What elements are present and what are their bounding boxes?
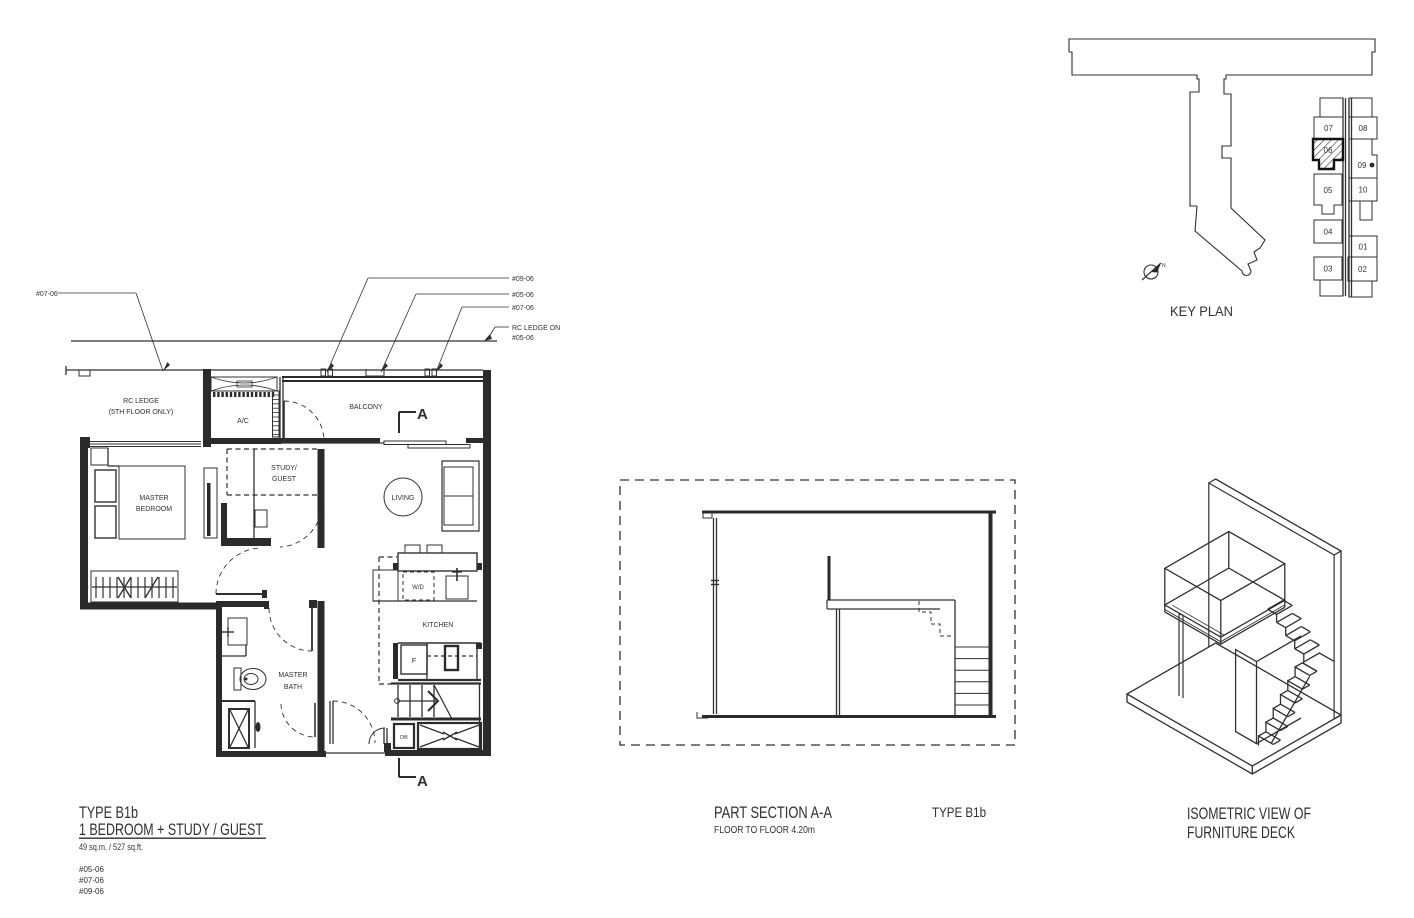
svg-text:STUDY/: STUDY/ — [271, 465, 297, 472]
svg-text:W/D: W/D — [412, 585, 424, 591]
svg-text:A: A — [417, 406, 428, 423]
svg-text:03: 03 — [1324, 265, 1333, 274]
svg-text:#05-06: #05-06 — [512, 292, 534, 299]
svg-text:1 BEDROOM + STUDY / GUEST: 1 BEDROOM + STUDY / GUEST — [79, 821, 263, 839]
svg-text:GUEST: GUEST — [272, 476, 297, 483]
svg-text:F: F — [412, 658, 416, 665]
svg-text:KITCHEN: KITCHEN — [423, 622, 454, 629]
svg-text:01: 01 — [1359, 243, 1368, 252]
svg-text:05: 05 — [1324, 186, 1333, 195]
svg-text:06: 06 — [1324, 146, 1333, 155]
svg-text:#09-06: #09-06 — [512, 276, 534, 283]
svg-text:FURNITURE DECK: FURNITURE DECK — [1187, 824, 1295, 842]
svg-text:RC LEDGE: RC LEDGE — [123, 398, 159, 405]
svg-text:DB: DB — [400, 735, 408, 741]
svg-text:04: 04 — [1324, 228, 1333, 237]
svg-text:#05-06: #05-06 — [79, 865, 104, 874]
svg-text:TYPE B1b: TYPE B1b — [932, 805, 986, 820]
svg-text:LIVING: LIVING — [392, 495, 415, 502]
svg-text:07: 07 — [1324, 124, 1333, 133]
svg-text:#07-06: #07-06 — [512, 305, 534, 312]
svg-text:MASTER: MASTER — [139, 495, 168, 502]
svg-text:PART SECTION A-A: PART SECTION A-A — [714, 804, 832, 822]
svg-text:09: 09 — [1358, 161, 1367, 170]
svg-text:ISOMETRIC VIEW OF: ISOMETRIC VIEW OF — [1187, 805, 1311, 823]
svg-text:(5TH FLOOR ONLY): (5TH FLOOR ONLY) — [109, 409, 173, 416]
svg-text:MASTER: MASTER — [278, 672, 307, 679]
svg-text:#05-06: #05-06 — [512, 335, 534, 342]
svg-text:49 sq.m. / 527 sq.ft.: 49 sq.m. / 527 sq.ft. — [79, 842, 143, 852]
svg-text:BEDROOM: BEDROOM — [136, 506, 172, 513]
svg-text:08: 08 — [1359, 124, 1368, 133]
svg-text:BATH: BATH — [284, 684, 302, 691]
svg-text:#09-06: #09-06 — [79, 887, 104, 896]
svg-text:TYPE B1b: TYPE B1b — [79, 804, 138, 822]
svg-text:N: N — [1162, 263, 1166, 269]
svg-text:A/C: A/C — [237, 418, 249, 425]
svg-text:FLOOR TO FLOOR 4.20m: FLOOR TO FLOOR 4.20m — [714, 824, 815, 836]
svg-text:#07-06: #07-06 — [36, 291, 58, 298]
svg-text:02: 02 — [1358, 265, 1367, 274]
svg-text:BALCONY: BALCONY — [349, 404, 383, 411]
svg-text:#07-06: #07-06 — [79, 876, 104, 885]
svg-text:10: 10 — [1359, 186, 1368, 195]
svg-text:KEY PLAN: KEY PLAN — [1170, 303, 1233, 319]
svg-text:RC LEDGE ON: RC LEDGE ON — [512, 325, 560, 332]
svg-text:A: A — [417, 773, 428, 790]
